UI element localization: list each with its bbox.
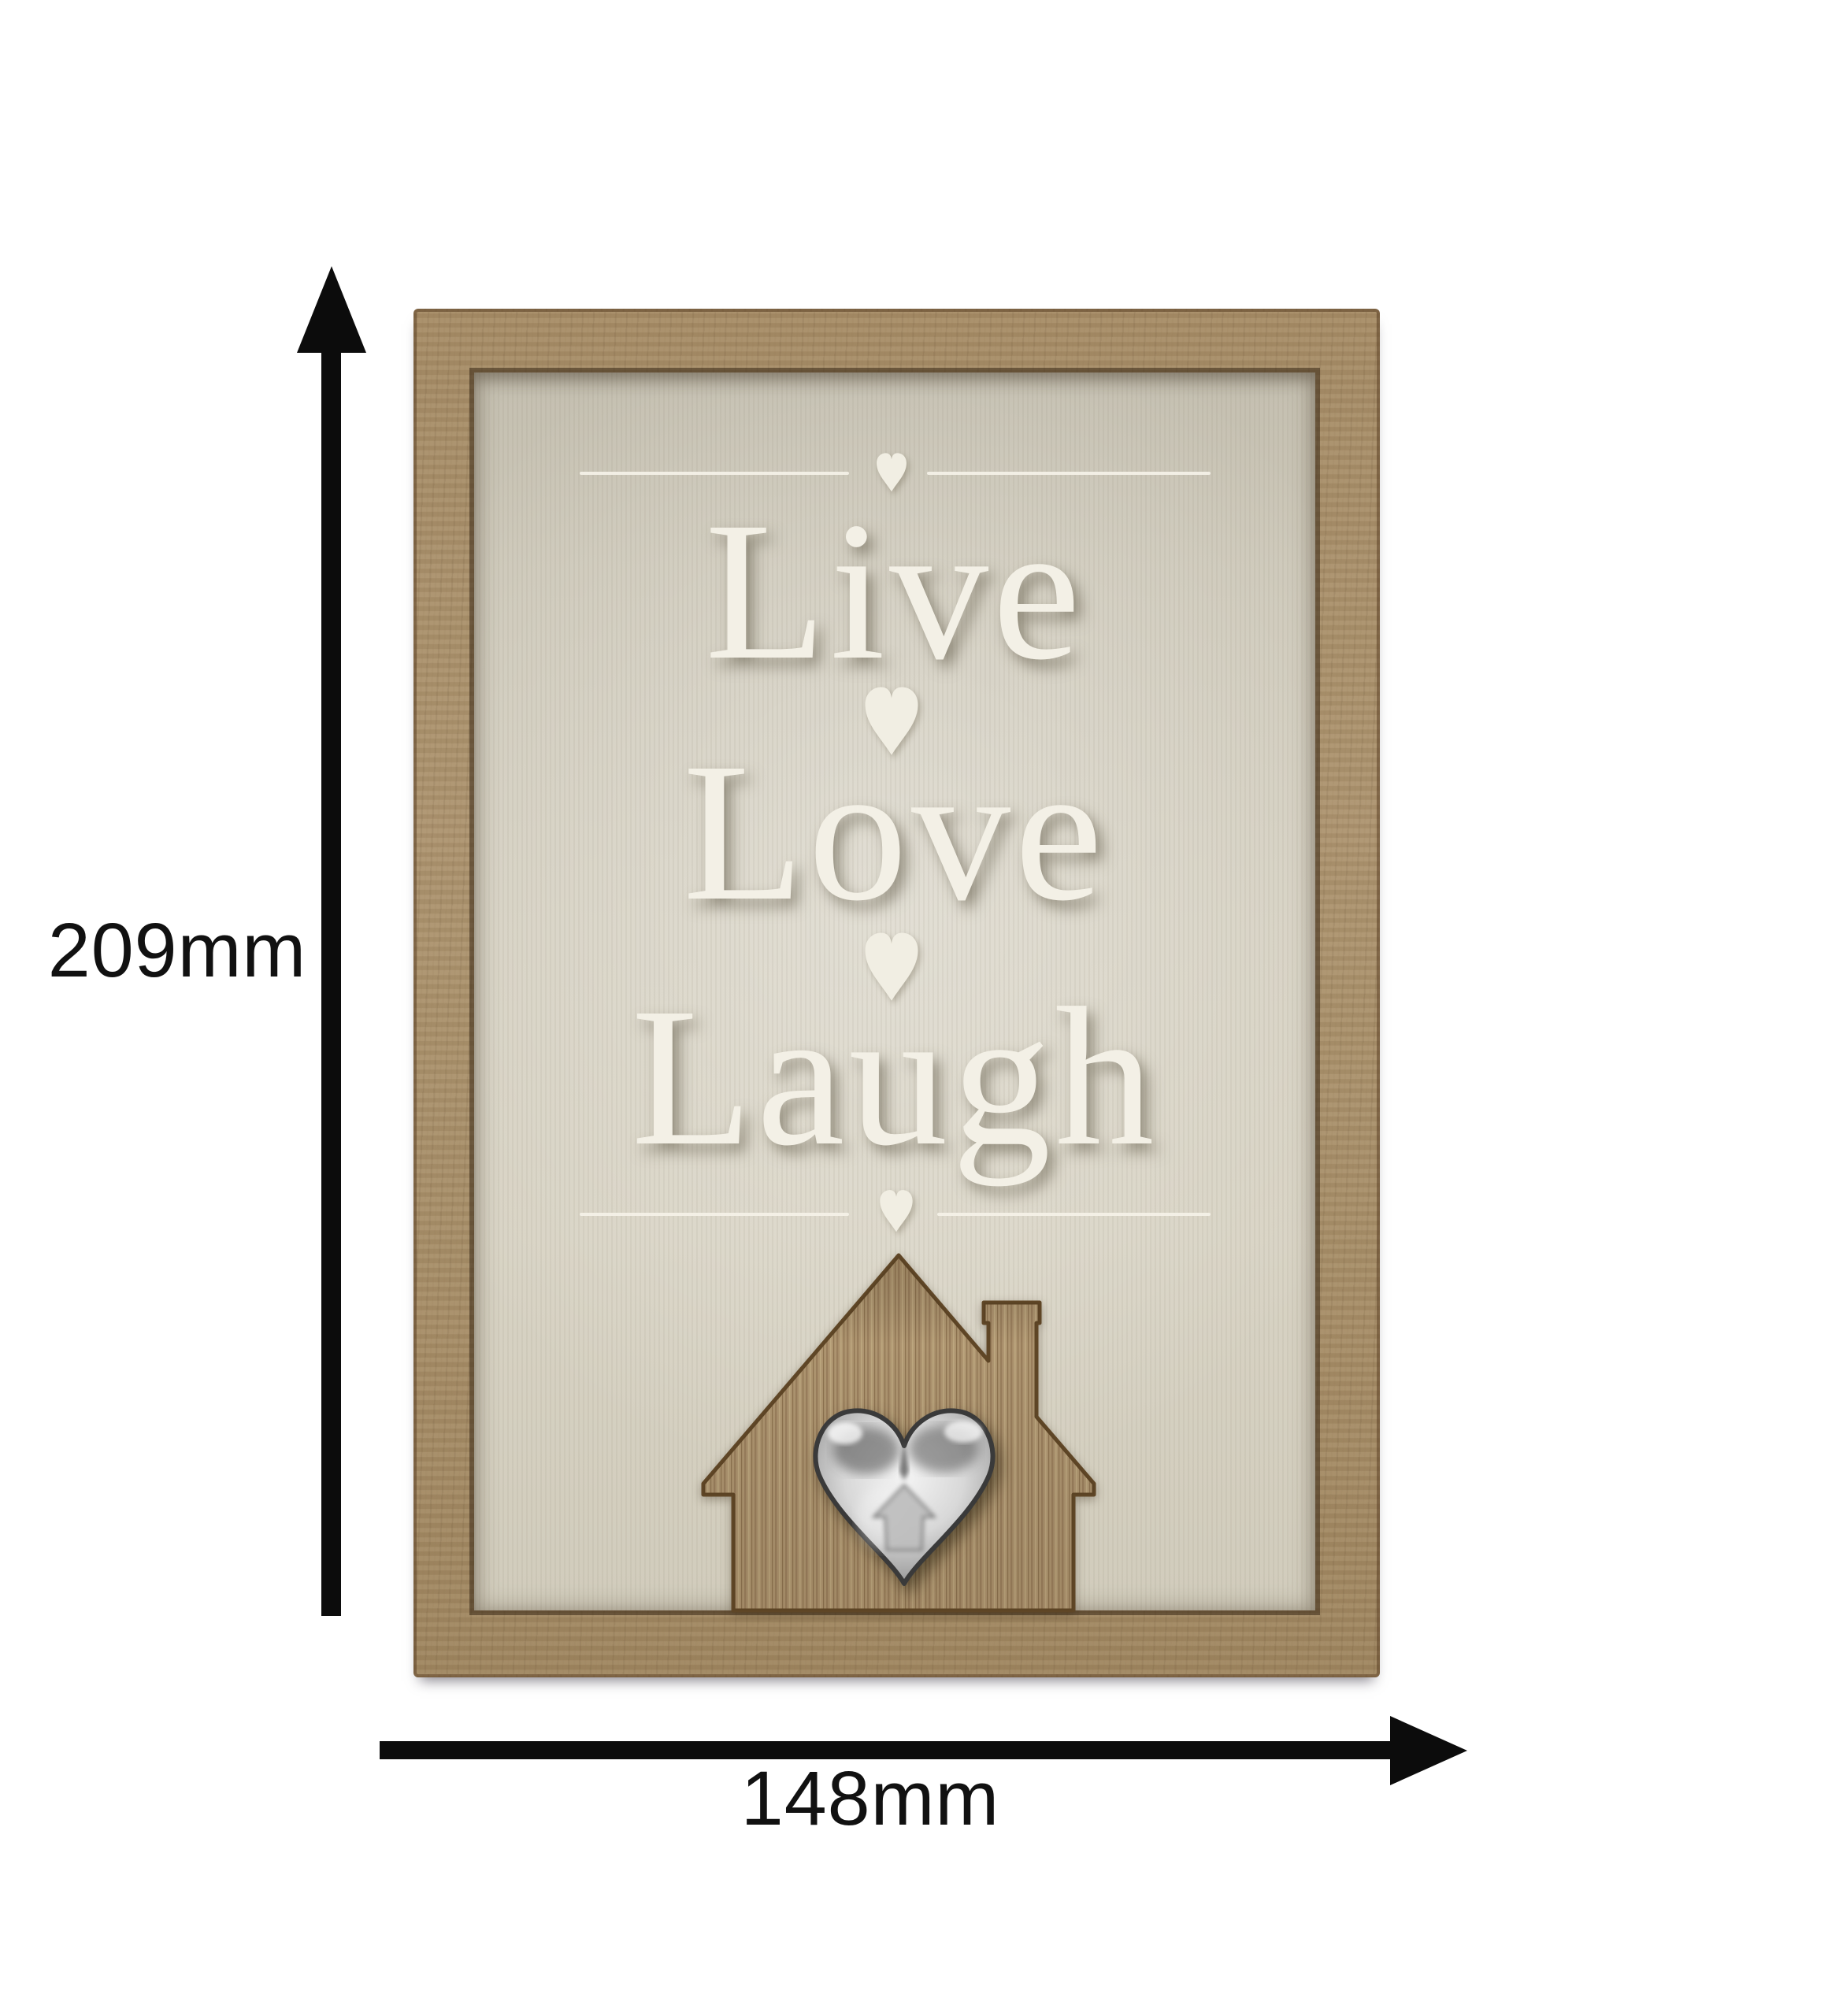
top-divider-line-left xyxy=(580,472,849,475)
height-dimension-label: 209mm xyxy=(48,906,306,995)
bottom-divider-line-right xyxy=(937,1213,1211,1216)
plaque-word-laugh: Laugh xyxy=(632,977,1159,1176)
bottom-divider-line-left xyxy=(580,1213,849,1216)
metal-heart-icon xyxy=(802,1392,1007,1589)
top-divider-line-right xyxy=(927,472,1211,475)
width-dimension-label: 148mm xyxy=(741,1755,999,1843)
plaque-word-love: Love xyxy=(683,732,1107,931)
product-photo: 209mm 148mm Live Love Laugh xyxy=(0,0,1828,2016)
up-arrow-icon xyxy=(297,266,366,353)
right-arrow-icon xyxy=(1390,1716,1467,1785)
vertical-measure-arrow-shaft xyxy=(321,350,341,1616)
heart-icon xyxy=(877,1186,915,1236)
plaque-word-live: Live xyxy=(705,491,1085,690)
